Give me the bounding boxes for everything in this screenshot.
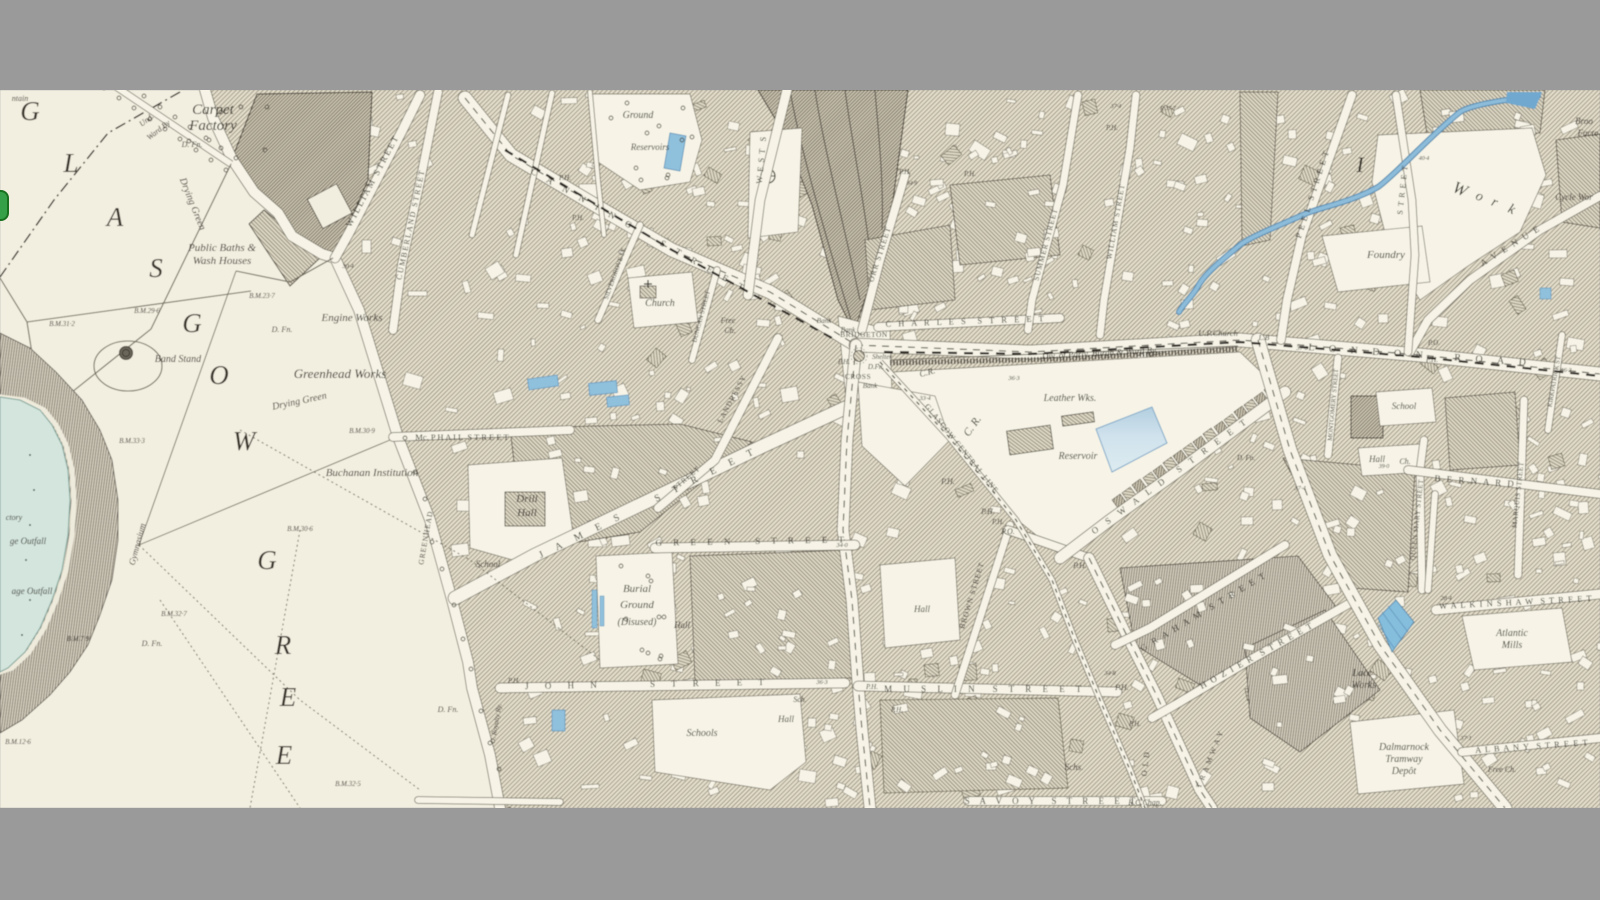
svg-text:Bank: Bank (863, 382, 878, 390)
svg-text:P.O.: P.O. (1427, 339, 1440, 347)
svg-text:Hall: Hall (777, 714, 795, 724)
svg-text:Schs.: Schs. (1065, 762, 1084, 772)
svg-text:P.H.: P.H. (1425, 356, 1438, 364)
svg-text:P.H.: P.H. (837, 358, 850, 366)
svg-text:36·3: 36·3 (1559, 367, 1572, 374)
svg-text:D. Fn.: D. Fn. (141, 639, 163, 648)
svg-text:Ground: Ground (623, 110, 655, 121)
svg-text:Schools: Schools (686, 728, 717, 739)
svg-text:Engine Works: Engine Works (320, 312, 382, 324)
svg-text:34·9: 34·9 (906, 180, 918, 187)
svg-text:D. Fn.: D. Fn. (271, 325, 293, 334)
svg-text:Church: Church (645, 298, 675, 309)
svg-text:P.O.: P.O. (1000, 527, 1015, 536)
svg-text:P.H.: P.H. (963, 170, 976, 178)
svg-text:P.H.: P.H. (980, 507, 995, 516)
svg-text:34·8: 34·8 (1103, 670, 1116, 677)
svg-text:P.H.: P.H. (898, 168, 911, 176)
svg-text:B.M.23·7: B.M.23·7 (249, 292, 275, 300)
svg-text:Wash Houses: Wash Houses (193, 255, 252, 267)
svg-text:ge Outfall: ge Outfall (10, 536, 47, 546)
svg-text:33·4: 33·4 (918, 395, 931, 402)
svg-text:Reservoirs: Reservoirs (630, 142, 670, 152)
svg-text:ntain: ntain (12, 94, 28, 103)
svg-text:36·3: 36·3 (1007, 375, 1020, 382)
svg-text:Hall: Hall (673, 620, 691, 630)
svg-text:Mc. P H A I L S T R E E T: Mc. P H A I L S T R E E T (415, 432, 509, 442)
svg-text:R.C.Chap.: R.C.Chap. (1127, 798, 1162, 807)
svg-text:37·1: 37·1 (1459, 735, 1471, 742)
svg-text:Mills: Mills (1501, 640, 1523, 651)
svg-text:P.H.: P.H. (571, 214, 584, 222)
svg-text:School: School (1392, 401, 1417, 411)
svg-text:Lace: Lace (1351, 668, 1372, 679)
svg-text:ctory: ctory (6, 513, 23, 522)
svg-text:Greenhead Works: Greenhead Works (294, 366, 387, 381)
svg-text:40·4: 40·4 (1419, 155, 1430, 162)
svg-text:D. Fn.: D. Fn. (181, 140, 203, 149)
svg-text:Drill: Drill (515, 493, 537, 505)
svg-text:Buchanan Institution: Buchanan Institution (326, 467, 419, 479)
svg-text:B.M.30·9: B.M.30·9 (349, 427, 375, 435)
svg-text:Atlantic: Atlantic (1495, 628, 1528, 639)
svg-text:Hall: Hall (913, 604, 931, 614)
svg-text:Carpet: Carpet (192, 102, 235, 118)
svg-text:Facto: Facto (1577, 128, 1599, 138)
svg-text:Sch.: Sch. (793, 695, 807, 704)
svg-text:E: E (279, 682, 297, 712)
svg-text:28·4: 28·4 (1440, 595, 1452, 602)
svg-text:39·0: 39·0 (1378, 464, 1390, 470)
svg-text:Factory: Factory (188, 118, 237, 134)
svg-text:P.H.: P.H. (1072, 561, 1087, 570)
svg-text:P.H.: P.H. (1114, 683, 1129, 692)
svg-text:CROSS: CROSS (845, 372, 871, 381)
svg-text:D.Fn.: D.Fn. (867, 363, 885, 371)
svg-text:G: G (182, 308, 202, 338)
svg-text:Bank: Bank (817, 317, 832, 325)
svg-text:R: R (274, 630, 292, 660)
svg-text:Hall: Hall (516, 507, 537, 519)
svg-text:Free Ch.: Free Ch. (1487, 765, 1516, 774)
svg-text:P.H.: P.H. (1105, 124, 1118, 132)
svg-text:(Disused): (Disused) (618, 617, 658, 628)
svg-text:34·0: 34·0 (835, 542, 848, 549)
svg-text:U.P.Church: U.P.Church (1198, 328, 1238, 338)
svg-text:Burial: Burial (623, 583, 651, 595)
svg-text:School: School (476, 559, 501, 569)
svg-text:R 37·7: R 37·7 (1159, 106, 1177, 112)
svg-text:M U S L I N S T R E E T: M U S L I N S T R E E T (884, 684, 1086, 694)
svg-text:P.H.: P.H. (940, 477, 955, 486)
svg-text:S A V O Y S T R E E T: S A V O Y S T R E E T (965, 796, 1140, 806)
svg-text:L.B: L.B (1258, 333, 1270, 342)
svg-text:37·4: 37·4 (1110, 103, 1122, 110)
svg-text:Bank: Bank (841, 326, 856, 334)
svg-text:Public Baths &: Public Baths & (187, 242, 256, 254)
svg-text:A: A (105, 202, 124, 232)
svg-text:B.M.30·6: B.M.30·6 (287, 525, 313, 533)
svg-text:37·0: 37·0 (1295, 345, 1308, 352)
svg-text:Broo: Broo (1575, 116, 1593, 126)
svg-text:B.M.31·2: B.M.31·2 (49, 320, 75, 328)
svg-text:Works: Works (1352, 680, 1377, 691)
svg-text:Depôt: Depôt (1391, 766, 1417, 777)
svg-text:B.M.7·9: B.M.7·9 (67, 635, 90, 643)
svg-text:P.H.: P.H. (507, 677, 520, 685)
svg-text:36·3: 36·3 (815, 679, 828, 686)
svg-text:37·4: 37·4 (1293, 485, 1306, 492)
svg-text:B.M.32·5: B.M.32·5 (335, 780, 361, 788)
svg-text:Foundry: Foundry (1366, 249, 1405, 261)
svg-text:30·4: 30·4 (341, 263, 354, 270)
svg-text:P.H.: P.H. (890, 706, 903, 714)
svg-text:P.H.: P.H. (991, 518, 1004, 526)
svg-text:E: E (275, 740, 293, 770)
svg-text:Tramway: Tramway (1385, 754, 1423, 765)
svg-text:L: L (62, 148, 78, 178)
svg-text:Shelter: Shelter (872, 353, 892, 361)
svg-text:W: W (233, 426, 258, 456)
svg-text:Ground: Ground (620, 599, 654, 611)
svg-text:D. Fn.: D. Fn. (437, 705, 459, 714)
svg-text:P.H.: P.H. (1128, 720, 1141, 728)
svg-text:Dalmarnock: Dalmarnock (1378, 742, 1430, 753)
svg-text:D. Fn.: D. Fn. (1236, 454, 1255, 462)
svg-text:Hall: Hall (1368, 454, 1386, 464)
svg-text:G: G (257, 545, 277, 575)
svg-text:P.H.: P.H. (558, 174, 571, 182)
svg-text:B.M.29·6: B.M.29·6 (134, 307, 160, 315)
svg-text:B.M.33·3: B.M.33·3 (119, 437, 145, 445)
svg-text:Band Stand: Band Stand (155, 354, 202, 365)
svg-text:B.M.32·7: B.M.32·7 (161, 610, 187, 618)
svg-text:S: S (149, 253, 163, 283)
svg-text:Free: Free (720, 316, 736, 325)
svg-text:Ch.: Ch. (1399, 457, 1410, 466)
svg-text:Ch.: Ch. (724, 326, 735, 335)
svg-text:age Outfall: age Outfall (12, 586, 53, 596)
svg-text:B.M.12·6: B.M.12·6 (5, 738, 31, 746)
svg-text:Leather Wks.: Leather Wks. (1043, 393, 1097, 404)
svg-text:Reservoir: Reservoir (1058, 451, 1098, 462)
svg-text:P.H.: P.H. (865, 683, 878, 691)
svg-text:O: O (209, 360, 229, 390)
svg-text:Cycle Wor: Cycle Wor (1555, 192, 1593, 202)
